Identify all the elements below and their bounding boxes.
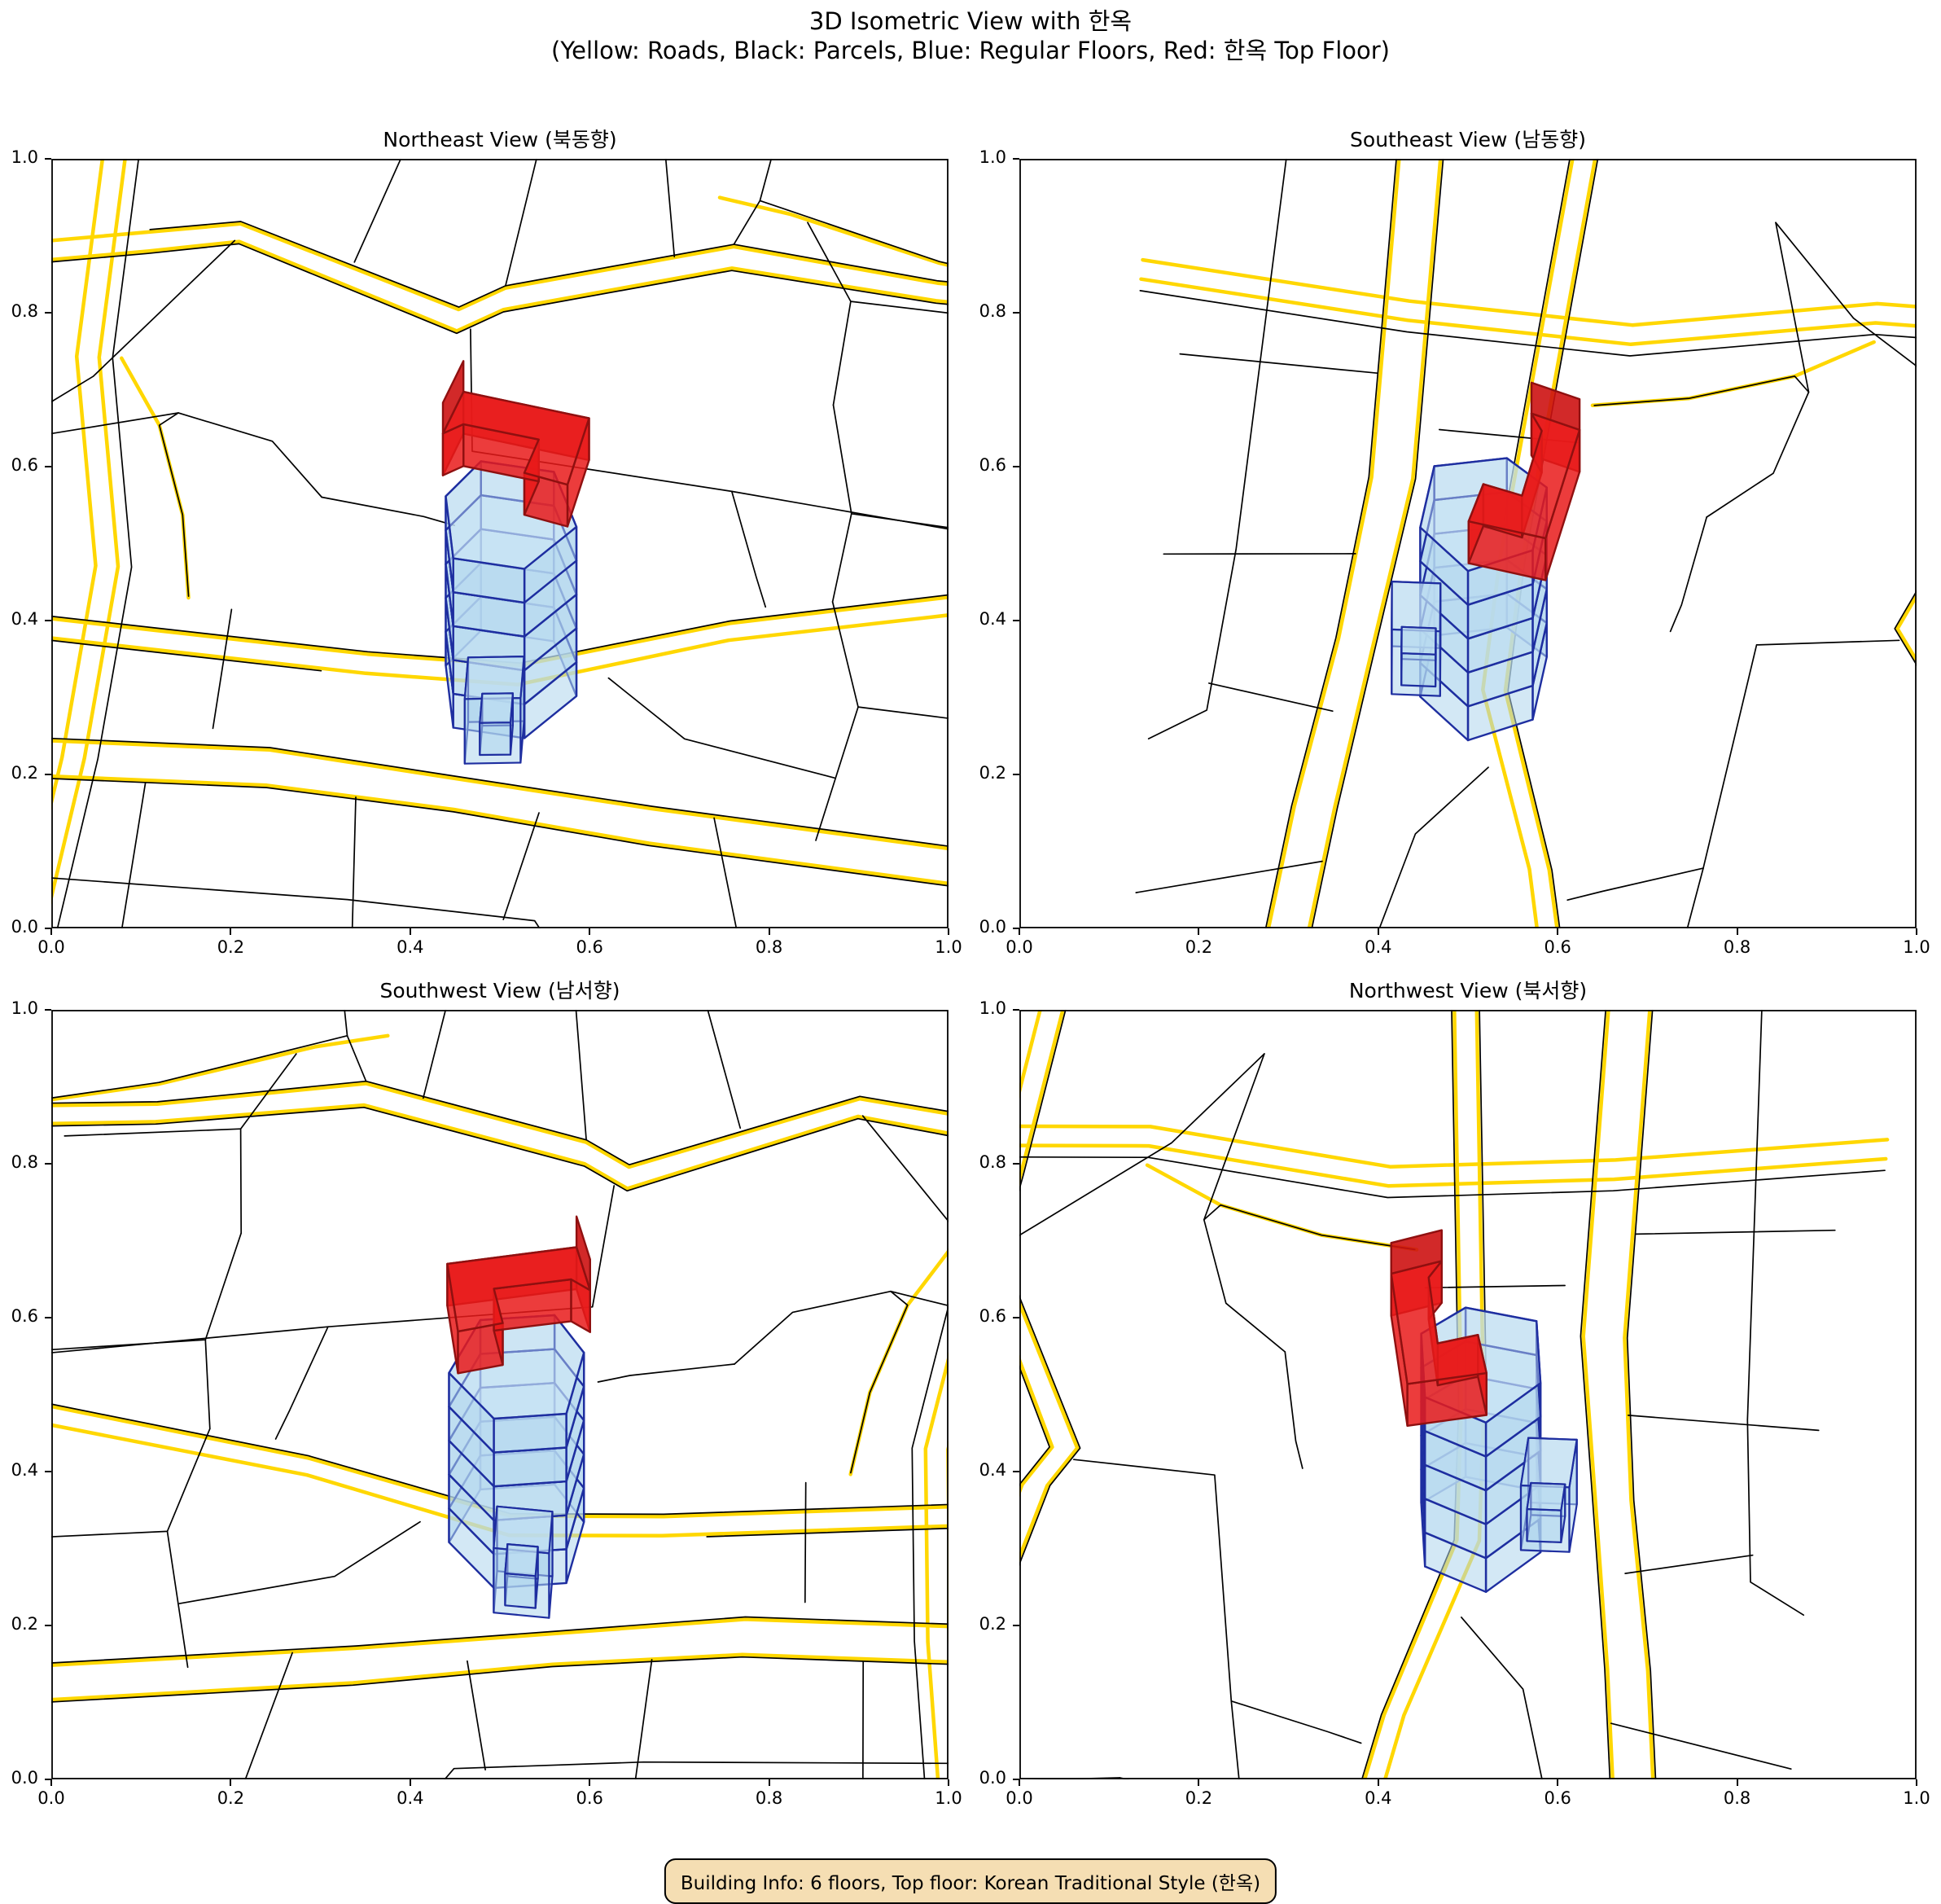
- x-tick-mark: [1378, 1779, 1379, 1786]
- x-tick-label: 0.0: [995, 937, 1044, 957]
- x-tick-mark: [230, 1779, 231, 1786]
- x-tick-label: 1.0: [1892, 1788, 1941, 1808]
- x-tick-mark: [410, 928, 411, 935]
- y-tick-label: 0.4: [956, 1460, 1006, 1480]
- x-tick-label: 0.6: [1533, 1788, 1582, 1808]
- y-tick-mark: [45, 1779, 51, 1780]
- subplot-title-southeast: Southeast View (남동향): [1019, 124, 1917, 153]
- x-tick-label: 0.4: [1354, 937, 1403, 957]
- x-tick-label: 0.8: [1713, 1788, 1762, 1808]
- y-tick-mark: [1013, 1163, 1019, 1165]
- x-tick-mark: [1198, 928, 1199, 935]
- x-tick-label: 0.8: [745, 1788, 794, 1808]
- x-tick-mark: [50, 928, 52, 935]
- x-tick-mark: [1198, 1779, 1199, 1786]
- x-tick-mark: [50, 1779, 52, 1786]
- y-tick-mark: [45, 158, 51, 160]
- x-tick-mark: [1557, 1779, 1558, 1786]
- subplot-southwest: [51, 1010, 949, 1779]
- y-tick-mark: [1013, 1009, 1019, 1011]
- y-tick-label: 0.2: [956, 1614, 1006, 1634]
- y-tick-mark: [1013, 774, 1019, 775]
- y-tick-mark: [45, 928, 51, 929]
- y-tick-label: 0.8: [956, 1152, 1006, 1172]
- y-tick-mark: [45, 312, 51, 314]
- y-tick-label: 0.2: [0, 1614, 38, 1634]
- x-tick-label: 0.4: [1354, 1788, 1403, 1808]
- subplot-northwest: [1019, 1010, 1917, 1779]
- x-tick-mark: [1378, 928, 1379, 935]
- x-tick-label: 0.6: [565, 1788, 614, 1808]
- x-tick-label: 1.0: [924, 1788, 973, 1808]
- subplot-title-southwest: Southwest View (남서향): [51, 975, 949, 1004]
- x-tick-label: 0.0: [995, 1788, 1044, 1808]
- x-tick-label: 1.0: [1892, 937, 1941, 957]
- y-tick-label: 0.6: [956, 455, 1006, 475]
- x-tick-label: 0.2: [206, 937, 255, 957]
- x-tick-label: 0.4: [386, 937, 435, 957]
- y-tick-mark: [45, 1009, 51, 1011]
- y-tick-label: 0.8: [0, 1152, 38, 1172]
- x-tick-mark: [1019, 1779, 1020, 1786]
- y-tick-mark: [45, 1471, 51, 1472]
- x-tick-mark: [1737, 1779, 1738, 1786]
- x-tick-mark: [1557, 928, 1558, 935]
- x-tick-label: 0.4: [386, 1788, 435, 1808]
- x-tick-label: 0.8: [745, 937, 794, 957]
- subplot-northeast: [51, 159, 949, 928]
- x-tick-label: 0.6: [1533, 937, 1582, 957]
- x-tick-label: 0.6: [565, 937, 614, 957]
- y-tick-mark: [1013, 620, 1019, 621]
- x-tick-mark: [769, 928, 770, 935]
- y-tick-label: 0.2: [956, 763, 1006, 783]
- subplot-title-northeast: Northeast View (북동향): [51, 124, 949, 153]
- figure-title: 3D Isometric View with 한옥: [0, 7, 1941, 36]
- y-tick-label: 0.8: [956, 301, 1006, 321]
- x-tick-label: 0.2: [206, 1788, 255, 1808]
- y-tick-label: 0.0: [956, 917, 1006, 937]
- y-tick-label: 0.8: [0, 301, 38, 321]
- x-tick-mark: [230, 928, 231, 935]
- figure-canvas: 3D Isometric View with 한옥 (Yellow: Roads…: [0, 0, 1941, 1904]
- y-tick-mark: [1013, 1471, 1019, 1472]
- y-tick-mark: [45, 774, 51, 775]
- y-tick-mark: [1013, 466, 1019, 467]
- y-tick-mark: [1013, 158, 1019, 160]
- x-tick-mark: [769, 1779, 770, 1786]
- y-tick-mark: [45, 1625, 51, 1626]
- x-tick-label: 0.0: [27, 1788, 76, 1808]
- y-tick-label: 0.4: [0, 1460, 38, 1480]
- y-tick-mark: [1013, 1779, 1019, 1780]
- y-tick-label: 0.6: [0, 1306, 38, 1326]
- x-tick-mark: [410, 1779, 411, 1786]
- x-tick-label: 0.2: [1174, 937, 1223, 957]
- x-tick-mark: [948, 1779, 949, 1786]
- y-tick-label: 1.0: [956, 998, 1006, 1018]
- y-tick-mark: [1013, 928, 1019, 929]
- x-tick-mark: [1737, 928, 1738, 935]
- y-tick-label: 1.0: [0, 147, 38, 167]
- x-tick-label: 0.8: [1713, 937, 1762, 957]
- y-tick-mark: [1013, 1317, 1019, 1318]
- x-tick-mark: [589, 928, 590, 935]
- x-tick-mark: [1916, 1779, 1917, 1786]
- y-tick-label: 0.2: [0, 763, 38, 783]
- subplot-southeast: [1019, 159, 1917, 928]
- y-tick-label: 0.4: [956, 609, 1006, 629]
- y-tick-mark: [45, 1163, 51, 1165]
- y-tick-label: 0.0: [0, 917, 38, 937]
- y-tick-mark: [45, 620, 51, 621]
- x-tick-mark: [589, 1779, 590, 1786]
- figure-subtitle: (Yellow: Roads, Black: Parcels, Blue: Re…: [0, 36, 1941, 65]
- y-tick-label: 0.0: [956, 1768, 1006, 1788]
- y-tick-label: 1.0: [0, 998, 38, 1018]
- y-tick-label: 0.6: [956, 1306, 1006, 1326]
- building-info-box: Building Info: 6 floors, Top floor: Kore…: [664, 1858, 1277, 1904]
- x-tick-label: 1.0: [924, 937, 973, 957]
- y-tick-label: 1.0: [956, 147, 1006, 167]
- y-tick-mark: [1013, 312, 1019, 314]
- y-tick-mark: [45, 466, 51, 467]
- subplot-title-northwest: Northwest View (북서향): [1019, 975, 1917, 1004]
- x-tick-mark: [1019, 928, 1020, 935]
- x-tick-label: 0.0: [27, 937, 76, 957]
- y-tick-label: 0.4: [0, 609, 38, 629]
- y-tick-label: 0.0: [0, 1768, 38, 1788]
- y-tick-mark: [45, 1317, 51, 1318]
- x-tick-mark: [948, 928, 949, 935]
- y-tick-mark: [1013, 1625, 1019, 1626]
- y-tick-label: 0.6: [0, 455, 38, 475]
- x-tick-label: 0.2: [1174, 1788, 1223, 1808]
- x-tick-mark: [1916, 928, 1917, 935]
